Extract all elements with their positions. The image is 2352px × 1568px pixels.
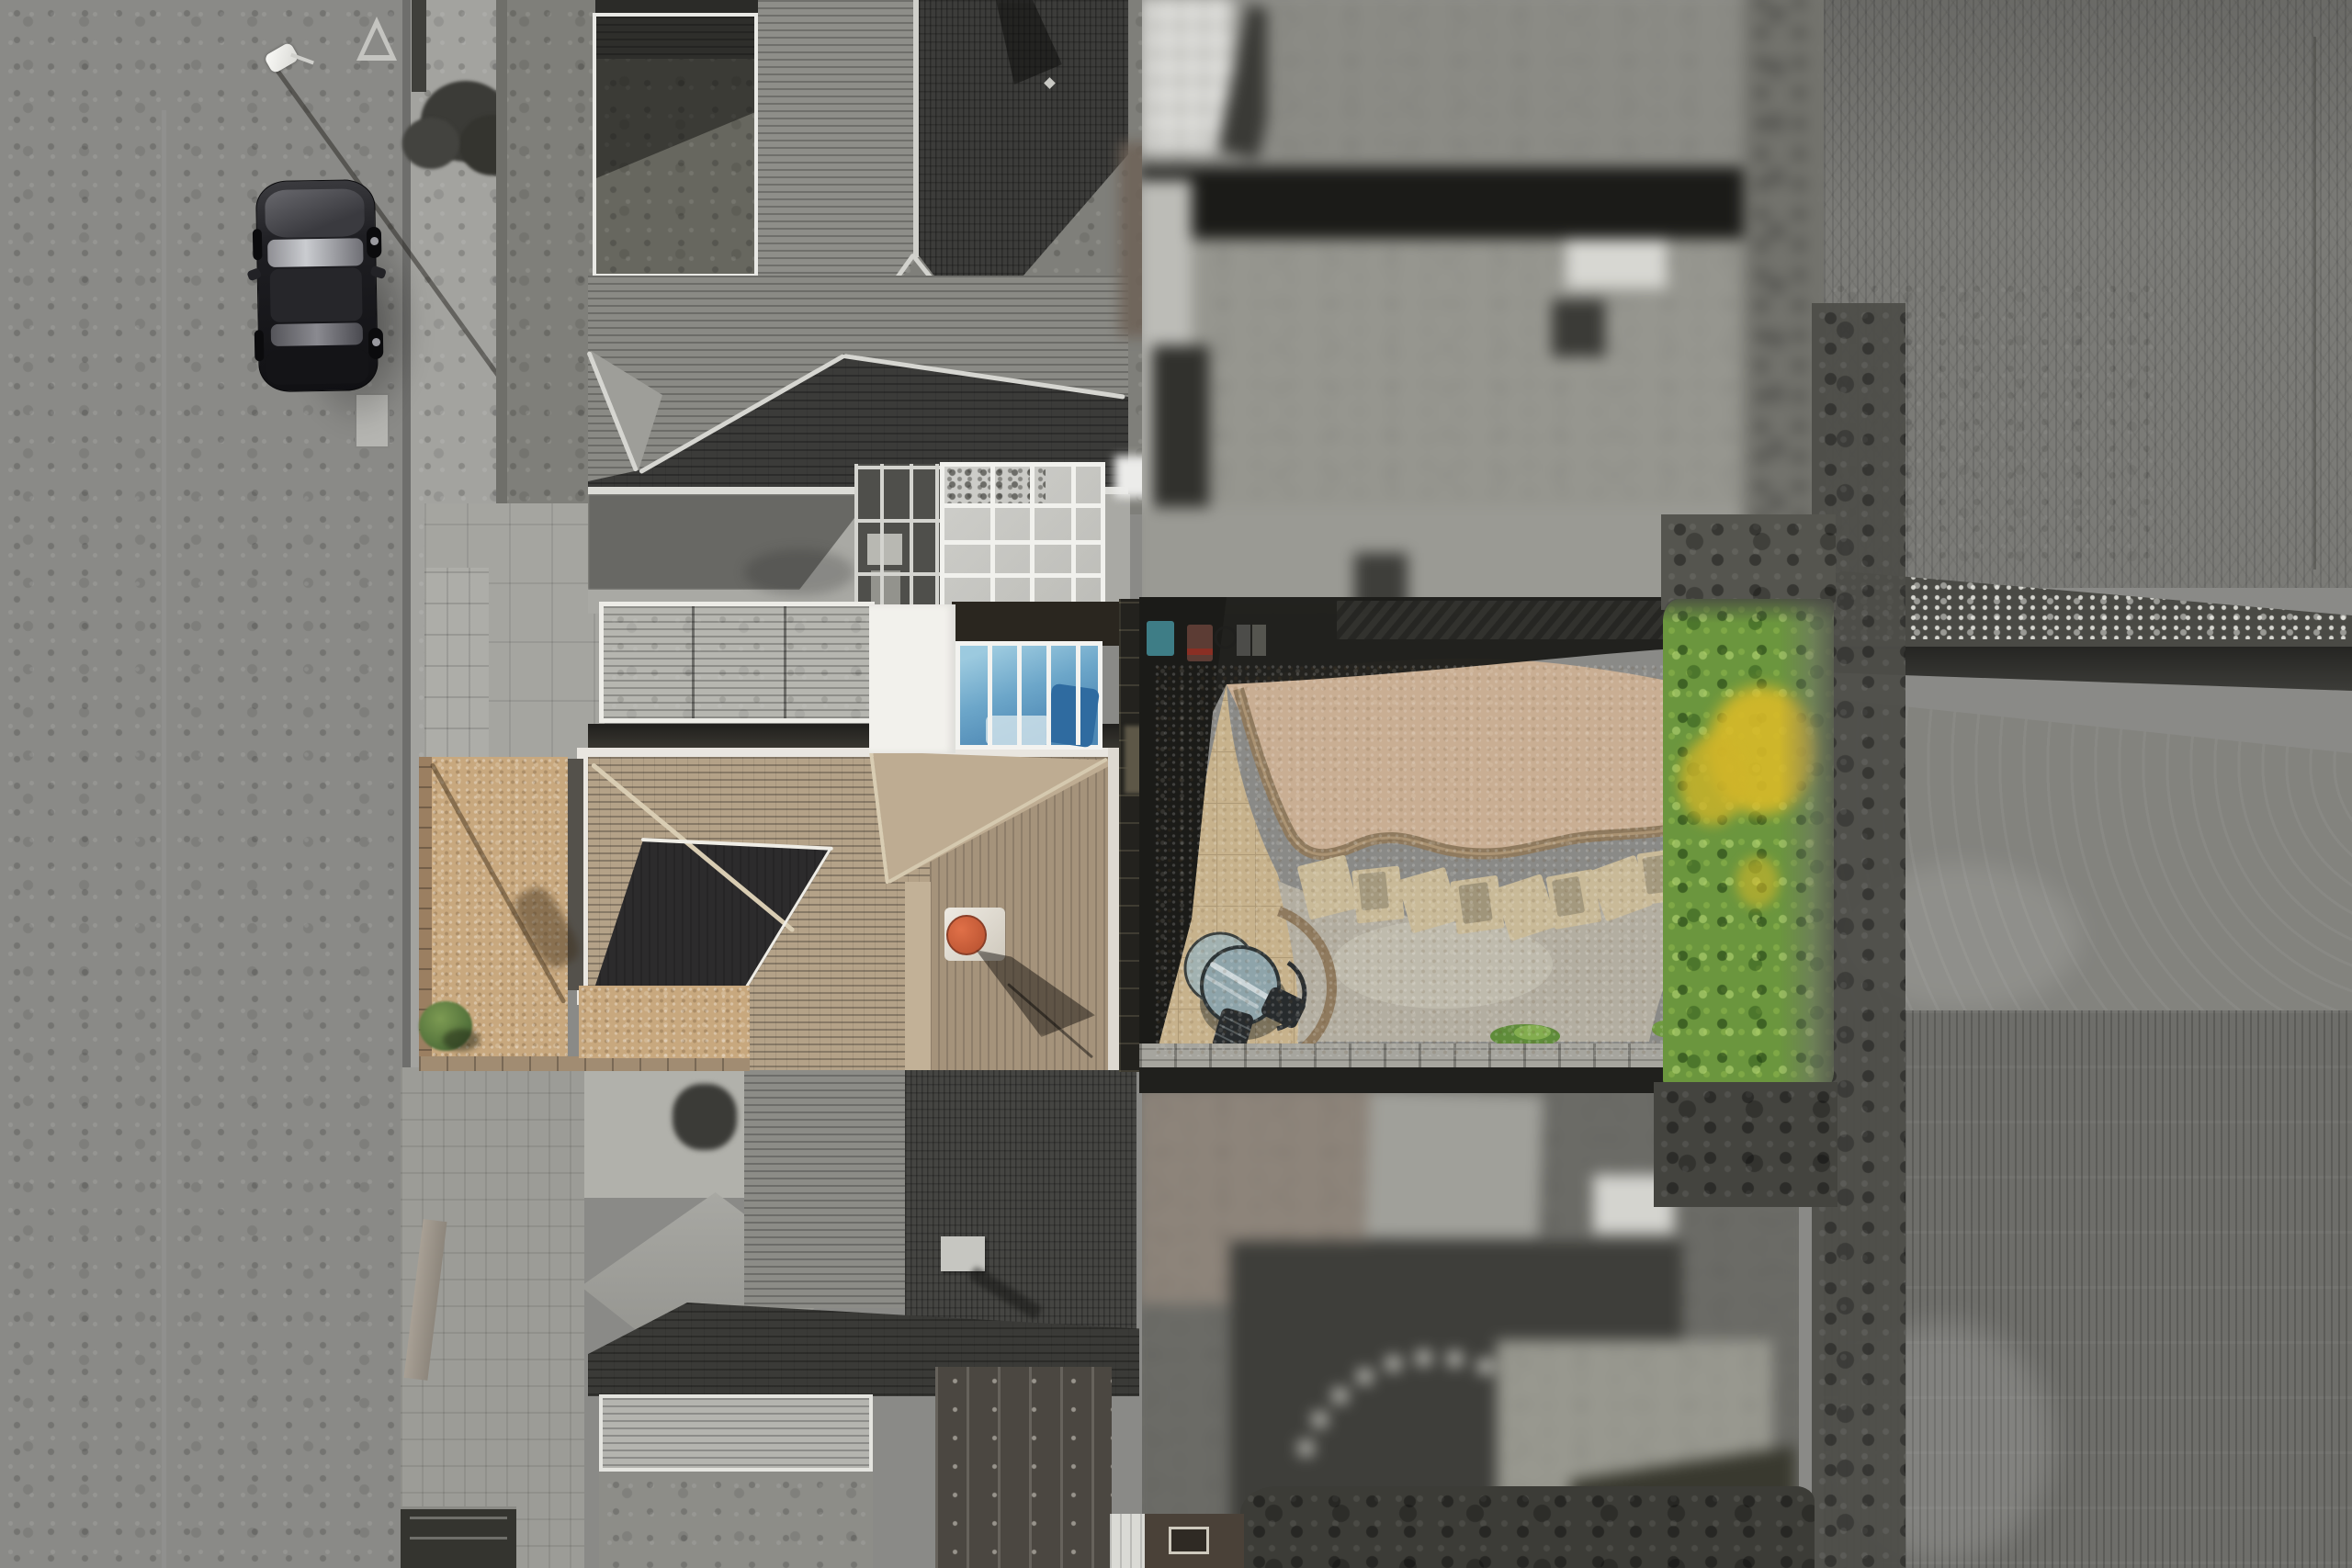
gate-slat (410, 1517, 507, 1519)
brown-bin (1187, 625, 1213, 661)
frame-post-4 (935, 464, 939, 613)
field-top-darker-band (1824, 0, 2352, 220)
dark-bin-2 (1252, 625, 1266, 656)
hedge-top-fade (1663, 599, 1834, 623)
lower-corrugated-garage (599, 1394, 873, 1472)
parked-car (255, 179, 388, 398)
shed-window (1169, 1527, 1209, 1554)
rusty-flat-roof (935, 1367, 1112, 1568)
stepping-dot (1357, 1369, 1373, 1384)
front-court-paving (424, 503, 605, 761)
skylight-mullion-3 (1046, 646, 1051, 745)
car-windshield (267, 238, 364, 267)
ridge-line-vertical (913, 0, 919, 257)
garden-shed-sharp (1145, 1514, 1244, 1568)
mullion-v1 (990, 467, 995, 608)
conservatory-glass-roof (940, 462, 1105, 613)
bin-cluster (1147, 621, 1266, 661)
dark-bin (1237, 625, 1250, 656)
trellis-posts (1139, 1043, 1690, 1067)
front-garden-wall (496, 0, 507, 514)
flat-roof-corrugation (596, 17, 754, 59)
blur-dark-blob-2 (1152, 345, 1209, 516)
blur-white-grid (1142, 0, 1234, 152)
front-gravel-under-porch (579, 986, 750, 1058)
frame-rail-2 (854, 519, 940, 523)
skylight-mullion-4 (1076, 646, 1080, 745)
blur2-shed-roof (1365, 1089, 1543, 1244)
chimney-shadow-dark-plane (996, 0, 1062, 85)
teal-wheelie-bin (1147, 621, 1174, 656)
car-wheel-rear-left (254, 330, 265, 361)
mullion-h1 (944, 503, 1101, 508)
stepping-dot (1332, 1388, 1348, 1404)
field-fence-wire (2313, 37, 2316, 570)
stepping-dot (1416, 1350, 1431, 1366)
mullion-v2 (1030, 467, 1035, 608)
blur-white-blob (1566, 239, 1667, 288)
greenhouse-shelving (854, 464, 940, 613)
gate-slat-2 (410, 1537, 507, 1540)
garden-hedge (1663, 599, 1834, 1088)
frame-post-2 (880, 464, 884, 613)
lower-yard (599, 1472, 873, 1568)
skylight-mullion-2 (1017, 646, 1022, 745)
gravel-block-border (419, 1056, 750, 1071)
hedge-bottom-grayscale (1654, 1082, 1837, 1207)
blur-fence-shadow-band (1142, 167, 1772, 241)
aerial-photo (0, 0, 2352, 1568)
blur-lawn-upper (1267, 0, 1824, 169)
shrub-shadow (443, 1029, 480, 1051)
tree-canopy-3 (402, 118, 459, 169)
stepping-dot (1447, 1351, 1463, 1367)
bin-red-stripe (1187, 649, 1213, 655)
weed-clump-light (1514, 1025, 1551, 1040)
blur-dark-blob (1552, 299, 1605, 356)
road-lane-seam (162, 110, 166, 1568)
car-hub-rear (372, 338, 380, 346)
lower-chimney (941, 1236, 985, 1271)
top-roof-sliver (595, 0, 758, 13)
chimney-cap (946, 915, 987, 955)
lower-house-wall (584, 1067, 750, 1198)
skylight-deep-reflection (1045, 683, 1100, 749)
upper-gravel-bed (1227, 659, 1690, 854)
hedge-top-grayscale (1661, 514, 1836, 610)
frame-post-3 (910, 464, 913, 613)
front-wall-shadow (412, 0, 426, 92)
flat-garage-roof (593, 13, 758, 277)
front-shrub (415, 998, 476, 1055)
mullion-h2 (944, 540, 1101, 545)
lower-roof-striped-slope (744, 1067, 910, 1308)
car-wheel-front-left (253, 229, 263, 260)
car-roof (270, 267, 363, 322)
car-bonnet (265, 188, 365, 238)
stepping-dot (1477, 1359, 1493, 1374)
mullion-v3 (1071, 467, 1076, 608)
tree-canopy-bottom (1240, 1486, 1815, 1568)
frame-rail (854, 466, 940, 469)
outbuilding-corrugated-roof (1337, 601, 1690, 639)
garage-corrugated-roof (599, 602, 875, 723)
frame-rail-3 (854, 572, 940, 576)
hedge-gray-fade (1663, 599, 1834, 1088)
shelf-box-2 (871, 570, 900, 607)
wall-creeper (673, 1084, 737, 1150)
mullion-h3 (944, 573, 1101, 578)
stone-block-wall (424, 568, 489, 761)
tile-vent (1044, 77, 1056, 89)
dark-paving-above-skylight (952, 602, 1126, 646)
garage-weathering (604, 606, 870, 718)
shelf-box (867, 534, 902, 565)
stepping-dot (1312, 1412, 1328, 1427)
frame-post (854, 464, 858, 613)
roof-valley-band (905, 882, 931, 1070)
courtyard-stain (744, 549, 854, 595)
skylight-mullion-1 (988, 646, 992, 745)
skylight-blue-glass (955, 641, 1102, 750)
side-gate (401, 1506, 516, 1568)
fence-shadow-gap (1139, 1067, 1690, 1093)
stepping-dot (1298, 1440, 1314, 1456)
stepping-dot (1385, 1356, 1401, 1371)
extension-white-roof (869, 604, 955, 753)
car-rear-window (271, 322, 363, 346)
car-tailgate (266, 348, 369, 385)
